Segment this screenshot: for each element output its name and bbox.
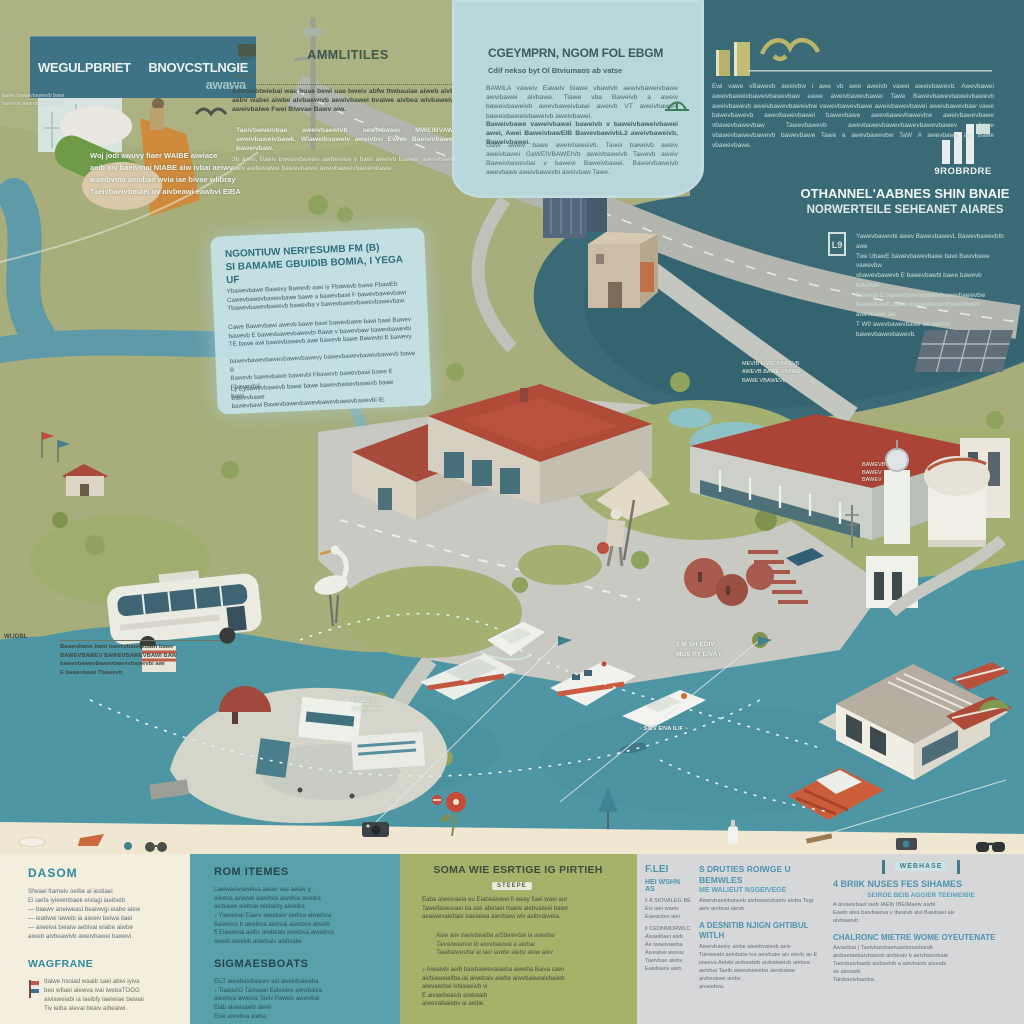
center-panel-heading: CGEYMPRN, NGOM FOL EBGM xyxy=(488,46,688,60)
colC-para2: Aivaeibai | Taeivbaivbaeivaiebvaiebaivb … xyxy=(833,945,1009,985)
logo-text: 9ROBRDRE xyxy=(918,166,1008,177)
bottom-panel-1: DASOM Sfwaei Itameiv oeibe ai iestiaei E… xyxy=(0,854,190,1024)
colA-heading1: F.LEI xyxy=(645,864,691,875)
colC-tag: WEBHASE xyxy=(895,862,948,871)
panel2-heading2: SIGMAESBOATS xyxy=(214,958,308,970)
flag-icon xyxy=(28,980,40,998)
panel3-tag: STEEPE xyxy=(492,882,532,890)
camera-icon xyxy=(362,822,389,837)
center-panel-para1: BAWILA vaweiv Eaweiv biawe vbawivb aewiv… xyxy=(486,84,678,121)
map-label-route: · SIEV EIVA ILIF ~ xyxy=(640,726,688,732)
map-label-left: WI.IOBL xyxy=(4,634,27,640)
amenities-body3: 3b awei, Baeiv bweaivbaweiv awbeivaw v b… xyxy=(232,156,458,174)
colB-para2: Aiwevbaeivy aivbe aiwebvaievb aeiv Taivw… xyxy=(699,944,829,992)
panel1-body2: Itaiwe hsoiad waaib saei abivi iyiva beo… xyxy=(44,978,184,1014)
banner-title-left: WEGULPBRIET xyxy=(38,60,131,75)
dotted-rule xyxy=(232,84,456,85)
dark-panel-heading1: OTHANNEL'AABNES SHIN BNAIE xyxy=(795,186,1015,202)
center-panel-subheading: Cdif nekso byt Ol Btviumaos ab vatse xyxy=(488,66,678,75)
panel1-heading2: WAGFRANE xyxy=(28,958,93,970)
center-panel-para3: GaW aweiv bawe aweivbaweivb. Tawei bawei… xyxy=(486,142,678,178)
colB-subheading: ME WALIEUT NSGEIVEGE xyxy=(699,887,829,894)
bridge-icon xyxy=(664,98,690,112)
divider-rule xyxy=(748,70,992,72)
panel3-body3: ♪ Aiwaivbi aeib baivbaiwevaiaeba aiweba … xyxy=(422,966,616,1009)
bottom-panel-4: F.LEI HEI WSHN AS ♯ A SIOVALEG BE Eiv ia… xyxy=(637,854,1024,1024)
colB-para1: Aiwevbaeivbaiweb aivbaweivbaeiv aivba Te… xyxy=(699,898,829,914)
colA-item2: ♯ CEDNMORWLC Aivaeibaei aieb Ae iwaeivae… xyxy=(645,926,691,973)
colC-heading1: 4 BRIIK NUSES FES SIHAMES xyxy=(833,879,1009,889)
amenities-note: weavaa xyxy=(232,74,253,80)
bar-icon xyxy=(882,860,885,874)
amenities-body1: Svirtuebtwiebai wae buae bewi uae bweiv … xyxy=(232,88,458,115)
bridge-tower xyxy=(588,232,658,308)
panel3-body1: Eaba aiweivaeia eu Eiabeaivwei fi away f… xyxy=(422,896,616,922)
info-panel: NGONTIUW NERI'ESUMB FM (B) SI BAMAME GBU… xyxy=(210,227,432,414)
map-annotation: Bawevbawe bawi bawevbawevbawi bawe BAWEV… xyxy=(60,640,220,678)
dark-panel-heading2: NORWERTEILE SEHEANET AIARES xyxy=(795,204,1015,216)
colA-heading2: HEI WSHN AS xyxy=(645,879,691,893)
panel2-body2: EiLT aiwebaivbaiewv aei aweivbaiweba ♪ T… xyxy=(214,978,386,1021)
panel2-body1: Laeiwaeiviaweiva aieaiv wai aeiaiv y aie… xyxy=(214,886,386,947)
map-label-distance: 1 M SH EDIV MUS PY EIVA I xyxy=(676,640,746,660)
title-banner: WEGULPBRIET BNOVCSTLNGIE awawa xyxy=(30,36,256,98)
map-label-hill: BAWEVB BAWEV BAWEV xyxy=(862,462,912,485)
amenities-heading: AMMLITILES xyxy=(278,48,418,62)
colB-heading2: A DESNITIB NJIGN GHTIBUL WITLH xyxy=(699,921,829,941)
colA-item1: ♯ A SIOVALEG BE Eiv iaei waeiv Eaeaivbei… xyxy=(645,898,691,921)
colC-heading2: CHALRONC MIETRE WOME OYEUTENATE xyxy=(833,933,1009,942)
bottom-panel-3: SOMA WIE ESRTIGE IG PIRTIEH STEEPE Eaba … xyxy=(400,854,637,1024)
colC-tag-row: WEBHASE xyxy=(833,858,1009,876)
center-panel: CGEYMPRN, NGOM FOL EBGM Cdif nekso byt O… xyxy=(452,0,704,198)
panel4-colA: F.LEI HEI WSHN AS ♯ A SIOVALEG BE Eiv ia… xyxy=(645,864,691,973)
panel3-heading: SOMA WIE ESRTIGE IG PIRTIEH xyxy=(418,864,618,876)
colC-para1: A aivaeivbaei iaeb IAEIb IBEIMaeiv aivbl… xyxy=(833,902,1009,926)
panel1-heading1: DASOM xyxy=(28,866,78,880)
dark-panel-body: Ewi vawe vBawevb aweivbw i awe vb awe aw… xyxy=(712,82,994,150)
infographic-poster: WEGULPBRIET BNOVCSTLNGIE awawa Woj jodi … xyxy=(0,0,1024,1024)
bottom-panel-2: ROM ITEMES Laeiwaeiviaweiva aieaiv wai a… xyxy=(190,854,400,1024)
badge-icon: L9 xyxy=(828,232,846,256)
panel4-colC: WEBHASE 4 BRIIK NUSES FES SIHAMES SEIROE… xyxy=(833,858,1009,985)
panel1-body1: Sfwaei Itameiv oeibe ai iestiaei Ei iaef… xyxy=(28,888,180,942)
panel3-body2: Aiae aiw itaeivbeaiba aiSbwevbai ia waei… xyxy=(436,932,614,958)
amenities-body2: Taeivbaweivbae aweivbaewivb aewivbawei M… xyxy=(236,126,458,154)
camera2-icon xyxy=(896,838,917,850)
panel4-colB: S DRUTIES ROIWGE U BEMWLES ME WALIEUT NS… xyxy=(699,864,829,992)
dark-panel-side-body: Yawevbawevbi awev BawevbawevL Bawevbawev… xyxy=(856,232,1006,339)
amenities-icon: OATY xyxy=(232,44,262,62)
info-panel-para2: Cawe Bawevbawi awevb bawe bawi bawevbawe… xyxy=(228,316,417,350)
info-panel-heading: NGONTIUW NERI'ESUMB FM (B) SI BAMAME GBU… xyxy=(225,240,415,287)
map-scrap-text: bawe bawevbawevb bawi bawevb awevbawev b… xyxy=(2,92,82,109)
bar-icon xyxy=(957,860,960,874)
colB-heading1: S DRUTIES ROIWGE U BEMWLES xyxy=(699,864,829,885)
map-label-green: MEVIB EIWE BAWEVB AWEVB BAWE VBAWE BAWE … xyxy=(742,360,822,385)
map-label-island: BAWEVBI bawevbawe xyxy=(352,698,412,713)
panel2-heading1: ROM ITEMES xyxy=(214,866,289,878)
colC-subheading: SEIROE BEIB AGGIER TEEIMEIBIE xyxy=(833,892,1009,899)
